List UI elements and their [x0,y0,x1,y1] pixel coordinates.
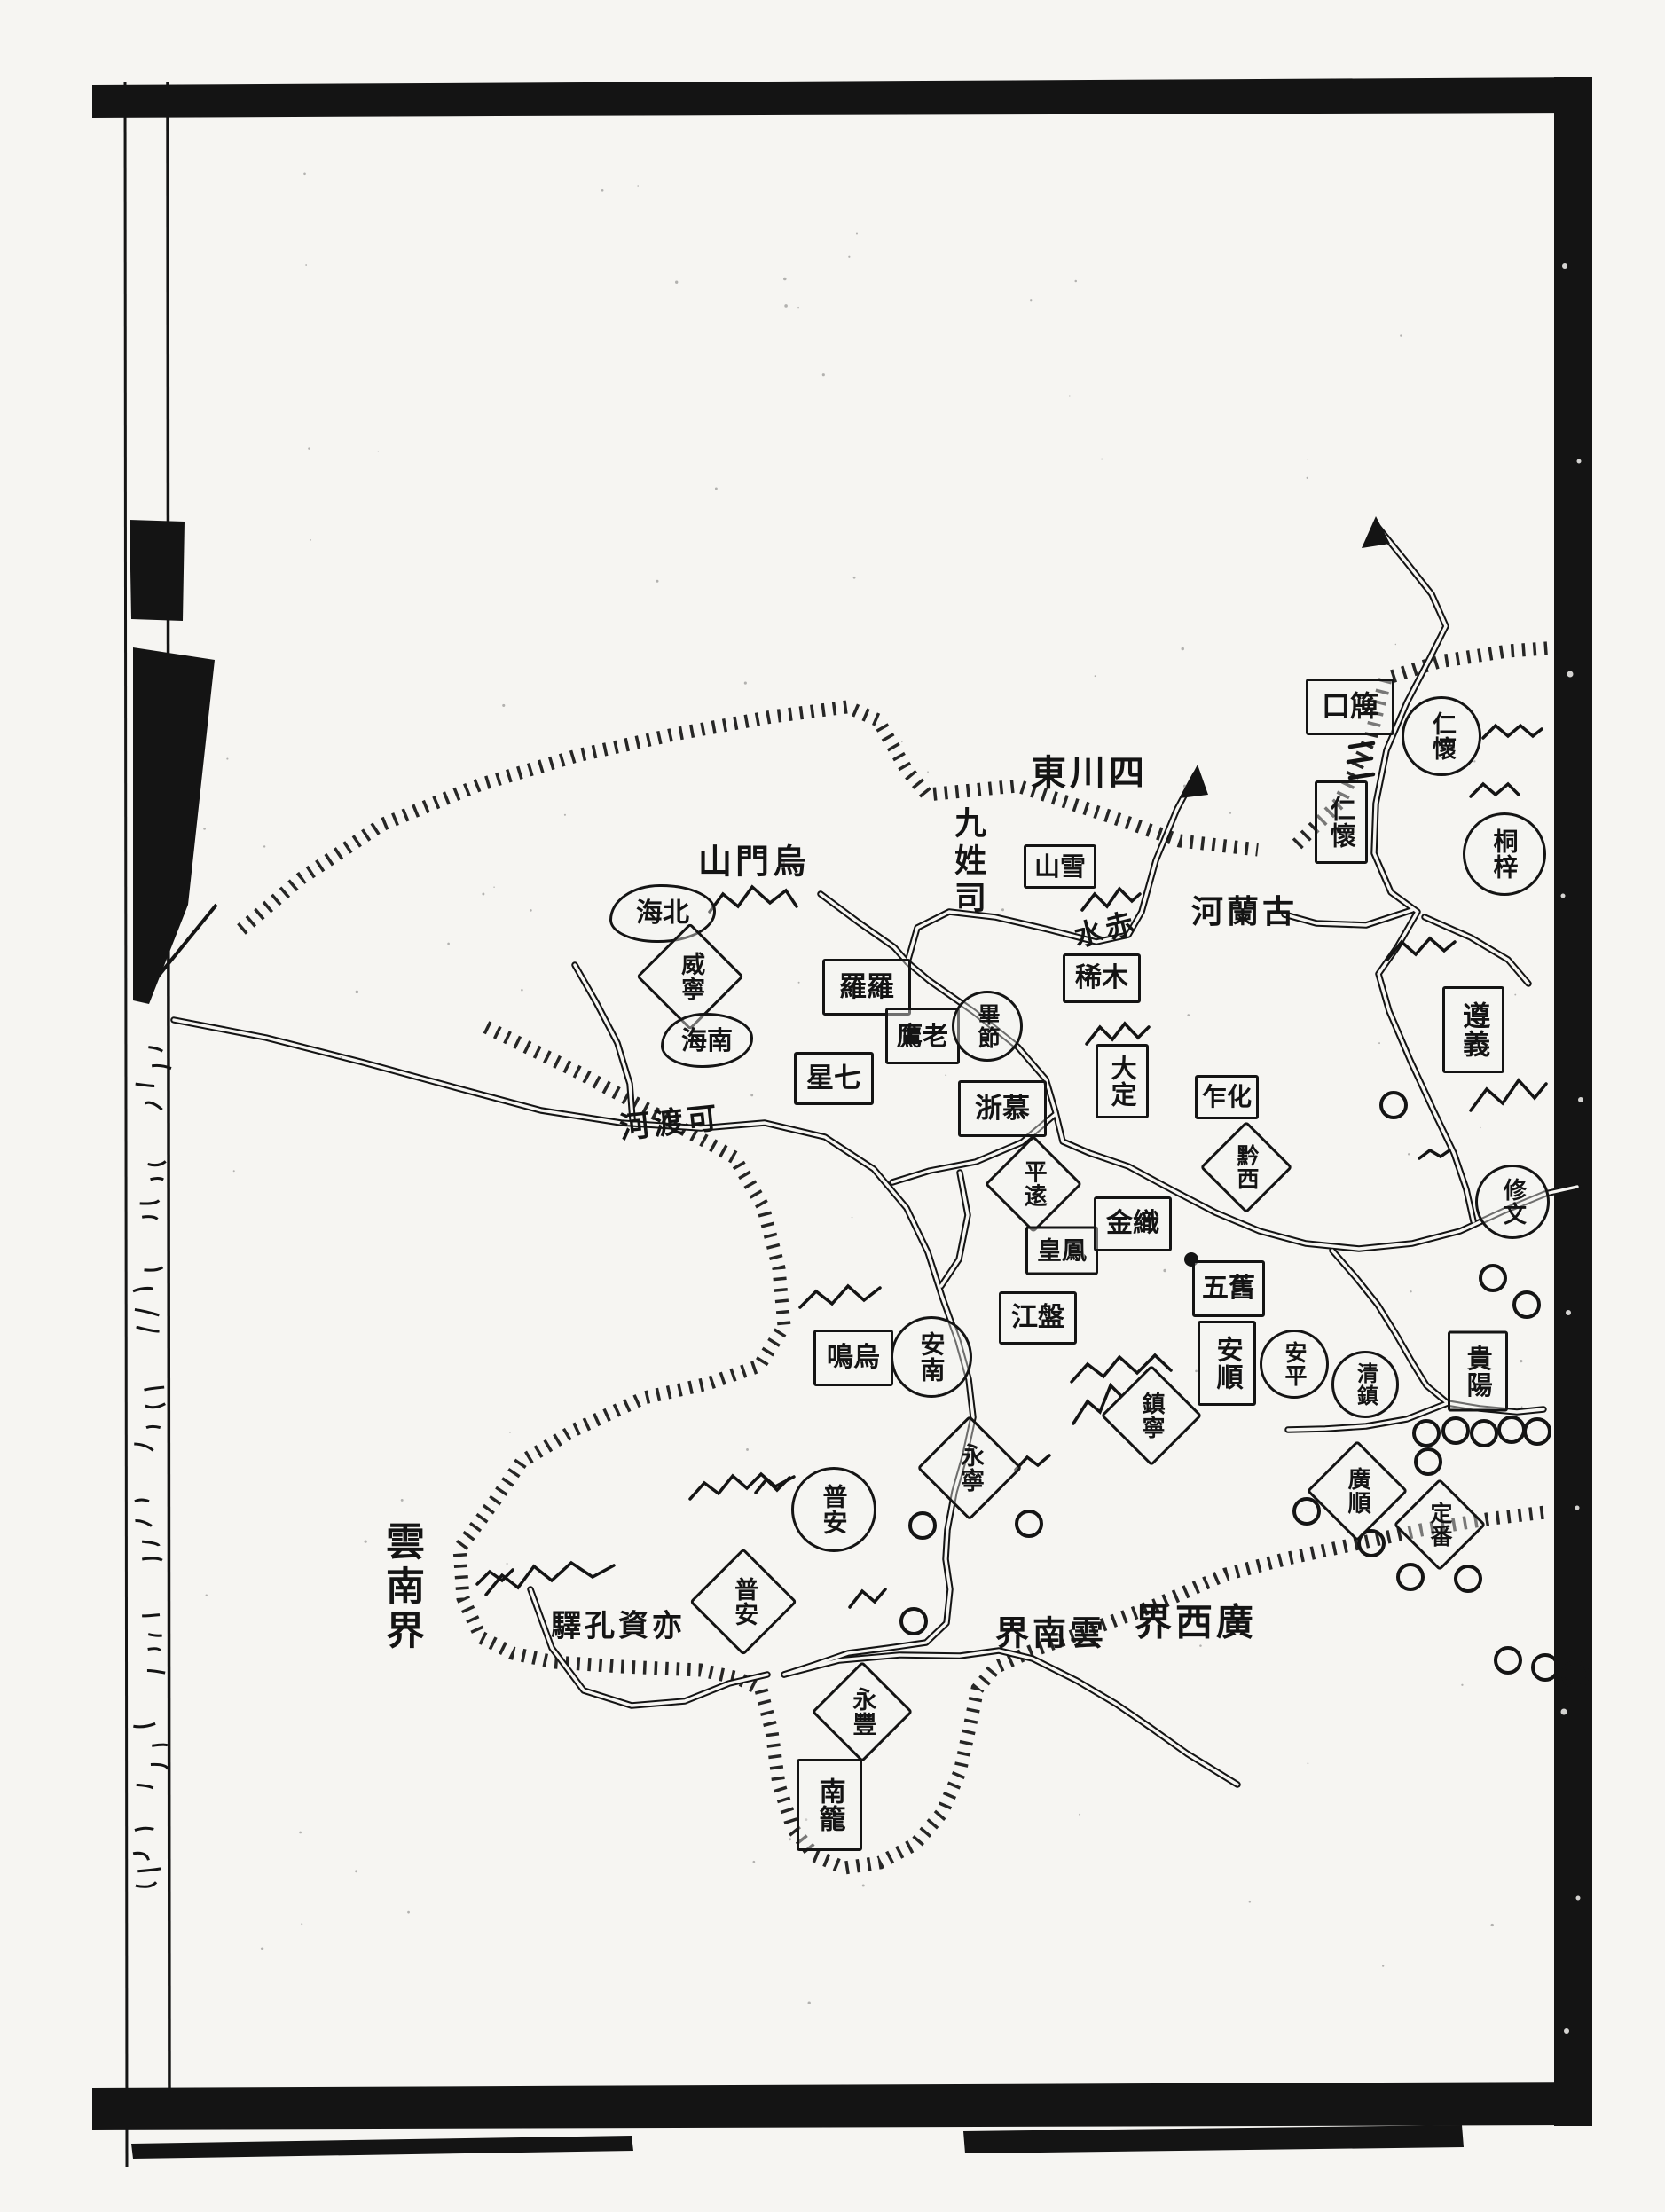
place-marker-浙慕-13: 浙慕 [958,1080,1047,1137]
map-text-3: 水赤 [1069,900,1141,955]
place-label: 乍化 [1202,1084,1252,1110]
map-text-8: 界西廣 [1135,1593,1257,1647]
place-label: 遵義 [1459,1001,1488,1058]
place-label: 鎮寧 [1139,1392,1163,1439]
place-marker-星七-12: 星七 [794,1052,874,1105]
map-text-9: 雲南界 [373,1521,429,1654]
place-label: 普安 [731,1577,756,1627]
place-label: 仁懷 [1328,796,1355,849]
place-marker-永豐-36: 永豐 [812,1661,914,1763]
place-marker-海南-8: 海南 [661,1013,753,1068]
place-label: 廣順 [1345,1467,1369,1515]
place-marker-仁懷-2: 仁懷 [1315,780,1368,864]
place-label: 金織 [1106,1210,1159,1237]
place-marker-黔西-16: 黔西 [1200,1121,1293,1214]
place-marker-遵義-17: 遵義 [1442,986,1504,1073]
map-text-1: 九姓司 [944,806,990,918]
place-label: 羅羅 [839,973,894,1001]
place-marker-仁懷-1: 仁懷 [1402,696,1481,776]
place-label: 永豐 [850,1687,875,1737]
place-marker-口簰-0: 口簰 [1306,679,1394,735]
place-marker-鷹老-10: 鷹老 [885,1008,960,1064]
place-label: 威寧 [678,952,703,1001]
place-marker-普安-34: 普安 [791,1467,876,1552]
place-marker-江盤-22: 江盤 [999,1291,1077,1345]
map-text-0: 東川四 [1031,744,1148,796]
place-marker-稀木-5: 稀木 [1063,953,1141,1003]
place-label: 鷹老 [897,1023,948,1049]
place-marker-南籠-37: 南籠 [797,1759,862,1851]
scanned-map-page: 口簰仁懷仁懷桐梓山雪稀木海北威寧海南羅羅鷹老畢節星七浙慕大定乍化黔西遵義修文平逺… [0,0,1665,2212]
place-label: 定番 [1428,1502,1451,1548]
place-marker-山雪-4: 山雪 [1024,844,1096,889]
place-label: 稀木 [1075,964,1128,992]
place-label: 安平 [1283,1341,1306,1387]
place-label: 修文 [1500,1178,1524,1226]
place-marker-清鎮-26: 清鎮 [1331,1351,1399,1418]
place-marker-五舊-23: 五舊 [1192,1260,1265,1317]
place-marker-鳴烏-31: 鳴烏 [813,1330,893,1386]
place-label: 黔西 [1235,1144,1258,1190]
place-marker-定番-30: 定番 [1394,1479,1487,1572]
place-label: 皇鳳 [1037,1237,1087,1263]
place-label: 安南 [918,1331,944,1383]
map-text-7: 界南雲 [995,1606,1107,1655]
place-label: 清鎮 [1355,1362,1377,1407]
place-marker-安南-32: 安南 [891,1316,972,1398]
map-text-5: 河渡可 [617,1094,722,1148]
place-label: 貴陽 [1465,1345,1491,1398]
map-text-6: 驛孔資亦 [551,1602,686,1645]
place-marker-大定-14: 大定 [1096,1044,1149,1118]
place-marker-畢節-11: 畢節 [952,991,1023,1062]
place-label: 五舊 [1202,1275,1255,1302]
place-marker-皇鳳-20: 皇鳳 [1025,1227,1098,1275]
map-text-4: 河蘭古 [1191,886,1298,932]
place-marker-安順-24: 安順 [1198,1321,1256,1406]
place-marker-永寧-33: 永寧 [917,1416,1023,1521]
place-marker-普安-35: 普安 [689,1548,797,1656]
map-text-2: 山門烏 [698,835,810,883]
place-label: 江盤 [1011,1304,1064,1331]
place-marker-廣順-29: 廣順 [1307,1440,1409,1542]
place-label: 安順 [1213,1336,1240,1391]
map-markers: 口簰仁懷仁懷桐梓山雪稀木海北威寧海南羅羅鷹老畢節星七浙慕大定乍化黔西遵義修文平逺… [0,0,1665,2212]
place-label: 大定 [1109,1055,1135,1108]
place-label: 星七 [806,1064,861,1093]
place-label: 畢節 [976,1003,999,1049]
place-marker-安平-25: 安平 [1260,1330,1329,1399]
place-marker-平逺-19: 平逺 [985,1135,1082,1233]
place-label: 普安 [821,1484,846,1535]
place-marker-乍化-15: 乍化 [1195,1075,1259,1119]
place-marker-桐梓-3: 桐梓 [1463,812,1546,896]
place-label: 海北 [636,899,689,927]
place-label: 南籠 [815,1777,843,1832]
place-label: 海南 [681,1027,733,1054]
place-marker-鎮寧-28: 鎮寧 [1101,1365,1203,1467]
place-label: 平逺 [1021,1160,1045,1208]
place-marker-修文-18: 修文 [1475,1165,1550,1239]
place-label: 山雪 [1034,853,1086,880]
place-marker-金織-21: 金織 [1094,1196,1172,1251]
place-label: 浙慕 [975,1094,1030,1123]
place-label: 口簰 [1322,692,1378,721]
place-marker-貴陽-27: 貴陽 [1448,1331,1508,1412]
place-label: 桐梓 [1491,828,1517,880]
place-label: 仁懷 [1429,711,1454,761]
place-label: 鳴烏 [827,1344,880,1371]
place-label: 永寧 [957,1443,982,1493]
